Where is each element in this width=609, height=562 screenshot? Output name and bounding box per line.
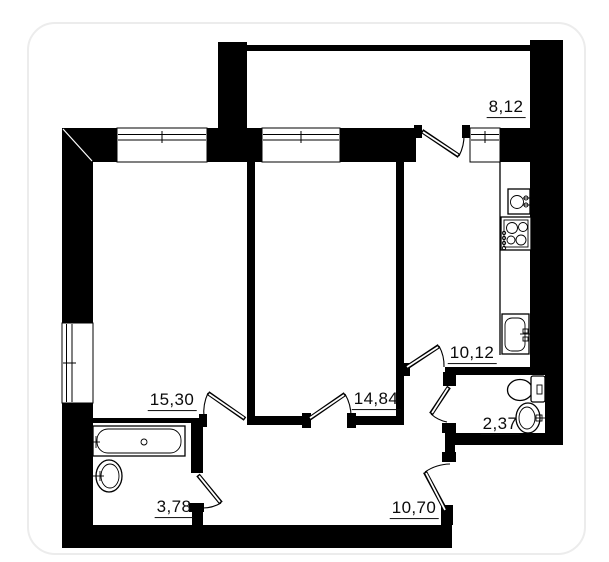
bathroom-basin-icon	[93, 460, 122, 492]
door-kitchen	[406, 346, 444, 368]
wall-right-upper	[530, 40, 563, 375]
door-post	[442, 452, 456, 462]
room-area-label-loggia: 8,12	[487, 98, 526, 118]
wall-bottom	[62, 525, 452, 548]
wall-room2-bottom-left	[247, 416, 307, 425]
door-post	[302, 413, 311, 428]
windows	[62, 128, 500, 403]
fixtures	[88, 189, 545, 492]
wall-left-lower	[62, 403, 93, 525]
window-kitchen	[470, 128, 500, 162]
room-area-label-kitchen: 10,12	[448, 344, 497, 364]
room-area-label-bathroom: 3,78	[155, 498, 194, 518]
floor-plan-drawing	[0, 0, 609, 562]
door-post	[462, 125, 470, 138]
door-post	[442, 423, 456, 433]
room-area-label-wc: 2,37	[481, 415, 520, 435]
kitchen-round-sink-icon	[508, 189, 534, 214]
toilet-icon	[508, 376, 546, 402]
door-room1	[204, 393, 245, 419]
window-left-wall	[62, 323, 93, 403]
room-area-label-room1: 15,30	[148, 391, 197, 411]
door-wc	[431, 387, 449, 422]
wall-room2-bottom-right	[350, 416, 396, 425]
doors	[198, 131, 464, 511]
door-loggia	[422, 131, 464, 156]
wall-room-divider	[247, 162, 255, 425]
floor-plan-screenshot: 8,12 10,12 15,30 14,84 2,37 3,78 10,70	[0, 0, 609, 562]
room-area-label-room2: 14,84	[352, 390, 401, 410]
wc-basin-icon	[516, 403, 545, 433]
wall-band-left	[93, 128, 117, 162]
wall-kitchen-west	[396, 162, 404, 425]
wall-loggia-top	[245, 45, 532, 51]
wall-right-wc	[545, 375, 563, 433]
door-post	[199, 414, 207, 427]
kitchen-sink-icon	[502, 314, 530, 354]
bathtub-icon	[88, 426, 185, 456]
door-room2	[309, 394, 351, 419]
door-post	[414, 125, 422, 138]
stove-icon	[501, 217, 531, 250]
room-area-label-hallway: 10,70	[390, 499, 439, 519]
wall-bath-top	[93, 418, 191, 423]
window-room2	[262, 128, 340, 162]
wall-band-right	[500, 128, 531, 162]
wall-wc-top	[445, 367, 563, 375]
window-room1	[117, 128, 207, 162]
wall-band-mid	[340, 128, 416, 162]
wall-band-pier	[207, 128, 262, 162]
door-post	[443, 372, 456, 386]
